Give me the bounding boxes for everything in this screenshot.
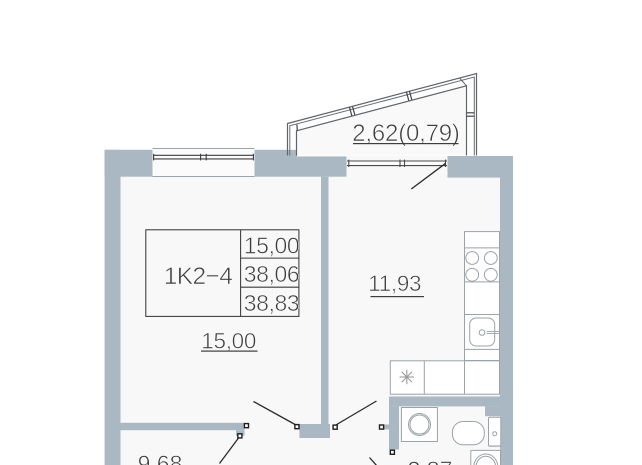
svg-text:9,68: 9,68 — [138, 451, 183, 465]
svg-text:2,62(0,79): 2,62(0,79) — [352, 120, 459, 147]
svg-text:15,00: 15,00 — [201, 328, 256, 353]
svg-text:15,00: 15,00 — [244, 232, 300, 258]
svg-text:3,87: 3,87 — [408, 457, 453, 465]
svg-text:1K2−4: 1K2−4 — [164, 263, 233, 290]
svg-text:38,83: 38,83 — [244, 290, 300, 316]
svg-text:11,93: 11,93 — [368, 271, 421, 296]
svg-text:38,06: 38,06 — [244, 261, 300, 287]
